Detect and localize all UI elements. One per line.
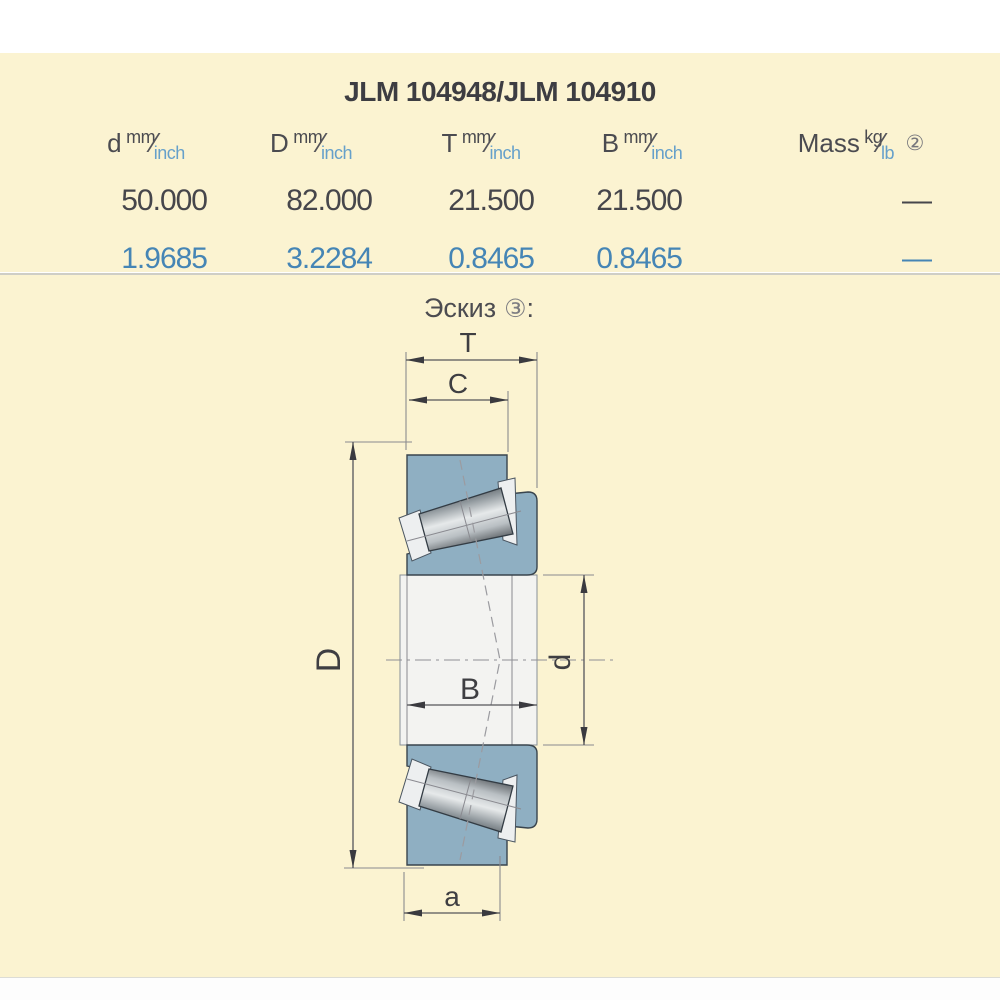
dim-label-a: a xyxy=(444,881,460,912)
dim-label-B: B xyxy=(460,673,480,706)
dim-label-C: C xyxy=(448,368,468,399)
dimension-a: a xyxy=(404,856,500,921)
dim-label-D: D xyxy=(310,648,348,673)
bearing-cross-section-drawing: T C D d xyxy=(0,0,1000,1000)
dim-label-T: T xyxy=(459,327,476,358)
dimension-d: d xyxy=(543,575,594,745)
dim-label-d: d xyxy=(544,654,577,671)
page: JLM 104948/JLM 104910 d mm⁄inch D mm⁄inc… xyxy=(0,0,1000,1000)
bearing-upper-half xyxy=(399,455,537,575)
bearing-lower-half xyxy=(399,745,537,865)
dimension-C: C xyxy=(409,368,508,452)
